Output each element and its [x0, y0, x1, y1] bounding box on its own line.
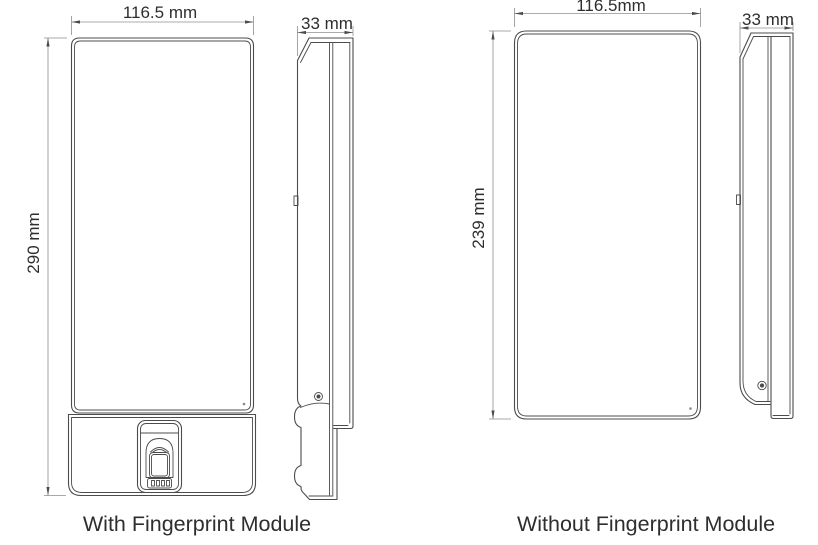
caption-with-module: With Fingerprint Module — [83, 512, 311, 536]
front-view-with-module — [69, 38, 256, 496]
dimension-height-with-module: 290 mm — [24, 38, 67, 496]
dimension-height-without-module: 239 mm — [469, 31, 511, 419]
depth-label-without-module: 33 mm — [742, 10, 794, 29]
width-label-with-module: 116.5 mm — [123, 3, 197, 22]
height-label-without-module: 239 mm — [469, 187, 488, 248]
depth-label-with-module: 33 mm — [301, 14, 353, 33]
fingerprint-module-housing — [69, 415, 256, 496]
width-label-without-module: 116.5mm — [576, 0, 646, 15]
front-view-without-module — [515, 31, 701, 419]
dimension-diagram: 116.5 mm 290 mm 33 mm With Fingerprint M… — [0, 0, 818, 545]
caption-without-module: Without Fingerprint Module — [517, 512, 775, 536]
side-view-with-module — [294, 38, 353, 500]
indicator-dot — [243, 403, 246, 406]
dimension-depth-without-module: 33 mm — [740, 10, 794, 53]
dimension-width-without-module: 116.5mm — [515, 0, 701, 27]
diagram-canvas: 116.5 mm 290 mm 33 mm With Fingerprint M… — [0, 0, 818, 545]
side-view-without-module — [737, 33, 794, 419]
device-body-outline — [515, 31, 701, 419]
indicator-dot — [689, 407, 692, 410]
fingerprint-module-housing-inner — [72, 418, 253, 493]
dimension-depth-with-module: 33 mm — [298, 14, 354, 56]
device-body-inner-outline — [75, 41, 251, 410]
fingerprint-sensor-icon — [138, 421, 182, 493]
dimension-width-with-module: 116.5 mm — [72, 3, 254, 35]
height-label-with-module: 290 mm — [24, 212, 43, 273]
device-body-inner-outline — [518, 34, 698, 416]
side-module-silhouette — [295, 398, 338, 500]
device-body-outline — [72, 38, 254, 413]
